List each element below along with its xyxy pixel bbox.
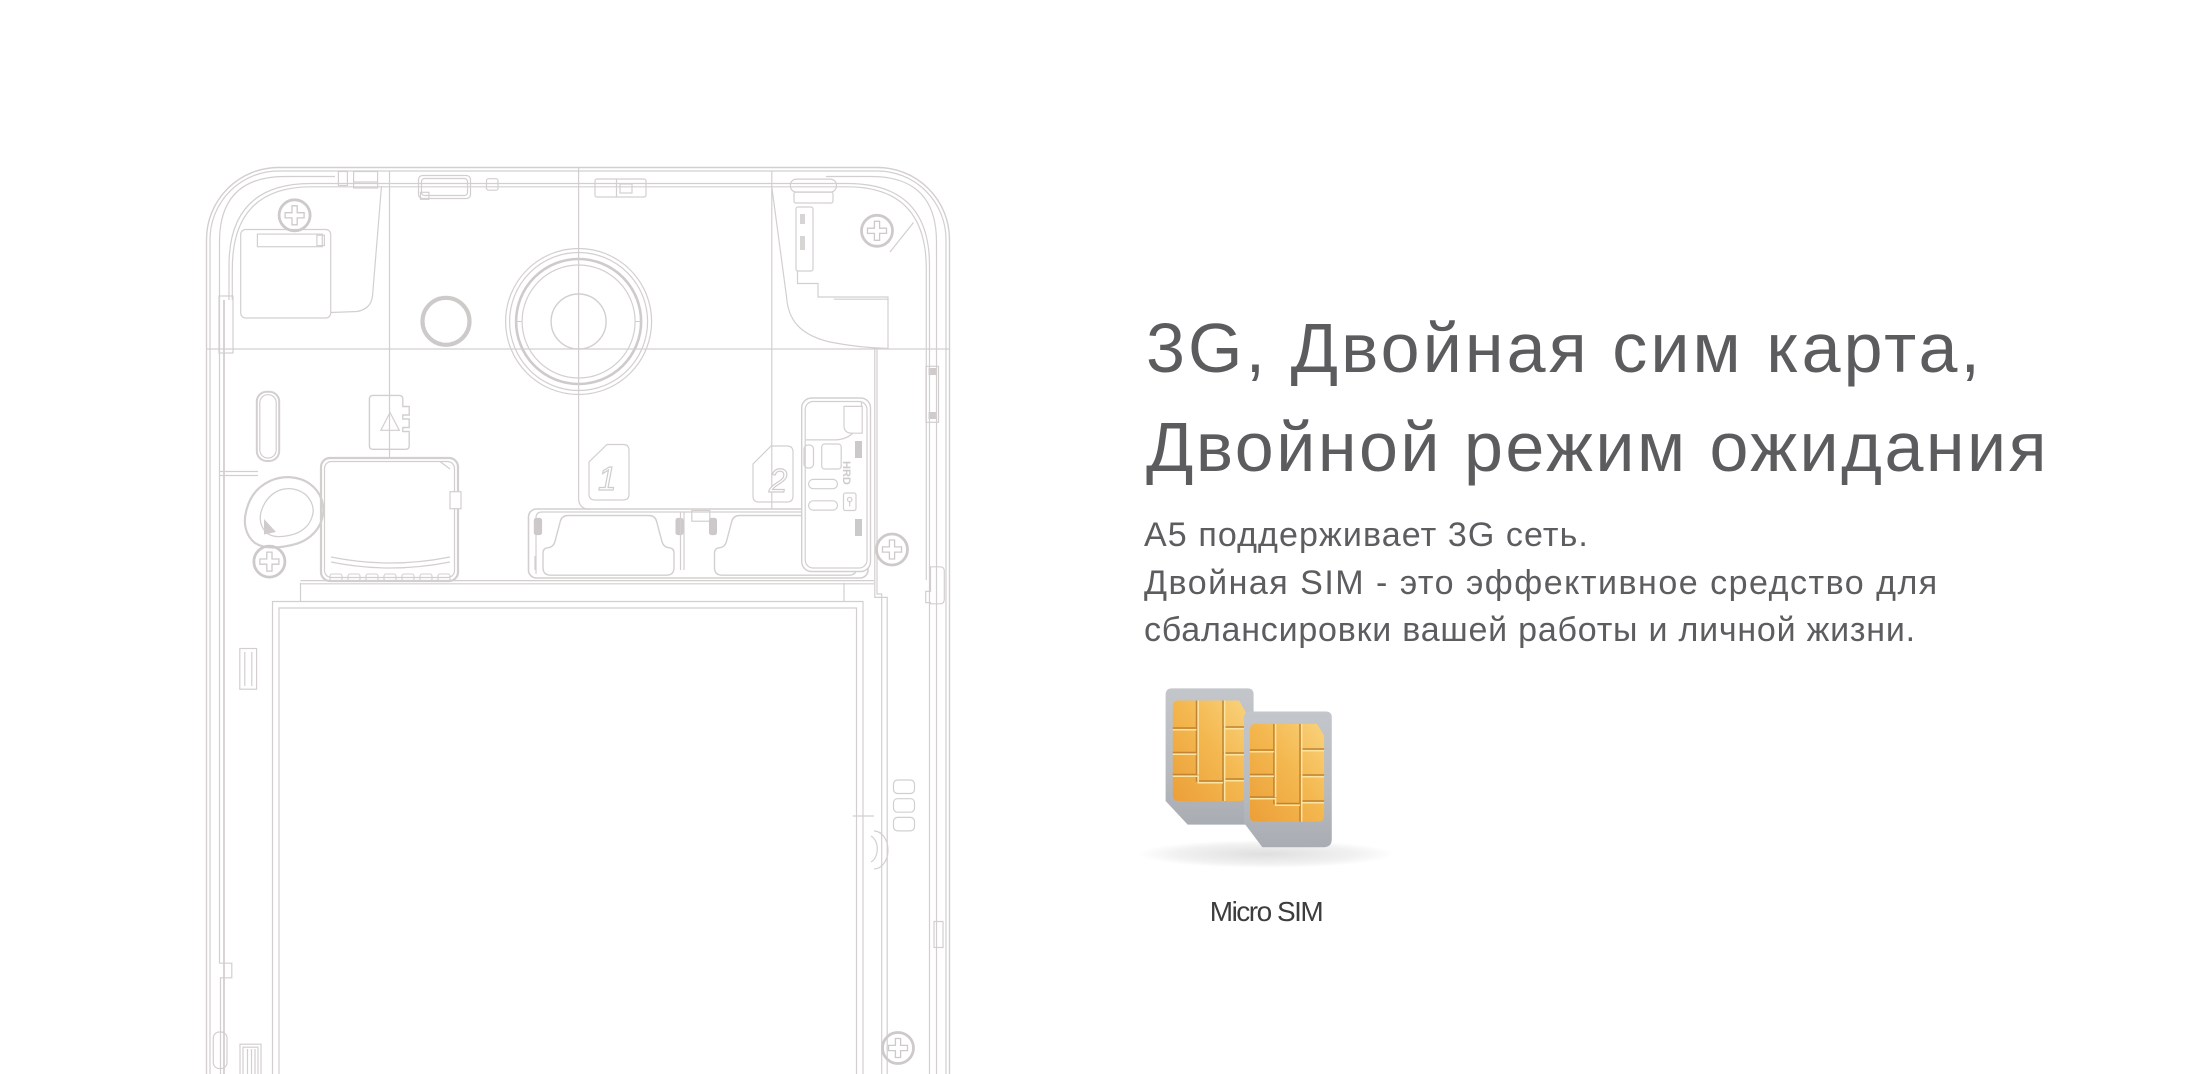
svg-text:HRD: HRD [840, 461, 852, 485]
svg-text:2: 2 [768, 462, 787, 499]
svg-text:1: 1 [598, 460, 616, 497]
